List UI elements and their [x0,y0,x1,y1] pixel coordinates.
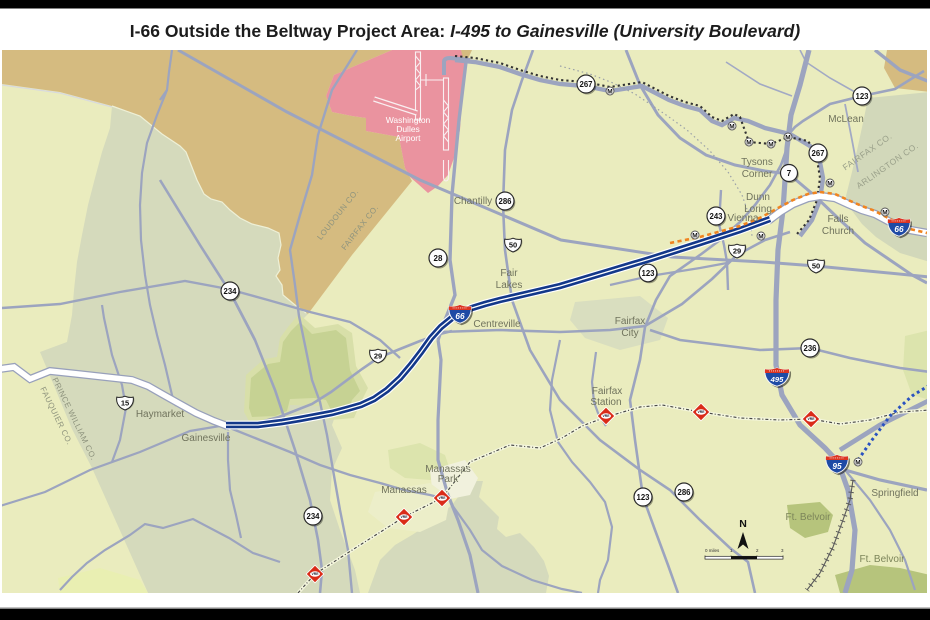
svg-text:Fairfax: Fairfax [592,386,623,397]
svg-text:McLean: McLean [828,114,864,125]
svg-text:28: 28 [434,254,443,263]
svg-text:Fairfax: Fairfax [615,316,646,327]
svg-text:50: 50 [812,262,820,271]
svg-text:286: 286 [498,197,512,206]
svg-text:Chantilly: Chantilly [454,196,492,207]
svg-text:Church: Church [822,226,854,237]
svg-text:Falls: Falls [827,214,848,225]
svg-text:267: 267 [579,80,592,89]
svg-text:286: 286 [677,488,691,497]
svg-text:N: N [739,518,747,530]
svg-text:234: 234 [306,512,320,521]
svg-text:VRE: VRE [698,410,706,414]
svg-text:95: 95 [832,461,842,471]
svg-text:VRE: VRE [439,496,447,500]
svg-text:Vienna: Vienna [728,213,759,224]
svg-text:0 miles: 0 miles [705,548,720,553]
svg-text:243: 243 [709,212,723,221]
svg-text:M: M [768,141,773,148]
svg-text:Corner: Corner [742,169,773,180]
svg-text:234: 234 [223,287,237,296]
svg-text:Lakes: Lakes [496,280,523,291]
svg-text:M: M [827,180,832,187]
svg-text:123: 123 [636,493,650,502]
svg-text:495: 495 [770,375,785,384]
svg-text:M: M [882,209,887,216]
svg-text:50: 50 [509,241,517,250]
svg-text:Manassas: Manassas [381,485,427,496]
svg-text:29: 29 [733,247,741,256]
svg-text:Tysons: Tysons [741,157,773,168]
svg-text:Springfield: Springfield [871,488,918,499]
svg-text:VRE: VRE [603,414,611,418]
svg-text:M: M [607,88,612,95]
svg-text:Ft. Belvoir: Ft. Belvoir [785,512,831,523]
svg-text:M: M [692,232,697,239]
svg-text:M: M [746,139,751,146]
svg-text:M: M [855,459,860,466]
svg-text:Ft. Belvoir: Ft. Belvoir [859,554,905,565]
svg-text:VRE: VRE [401,515,409,519]
svg-text:7: 7 [787,169,792,178]
svg-text:267: 267 [811,149,824,158]
svg-text:66: 66 [894,224,904,234]
svg-text:123: 123 [641,269,655,278]
svg-text:29: 29 [374,352,382,361]
svg-text:123: 123 [855,92,869,101]
svg-text:Fair: Fair [500,268,518,279]
svg-text:66: 66 [455,311,465,321]
svg-text:Gainesville: Gainesville [182,433,231,444]
svg-text:VRE: VRE [312,572,320,576]
svg-text:Haymarket: Haymarket [136,409,185,420]
svg-text:Station: Station [590,397,621,408]
svg-text:Park: Park [438,474,460,485]
svg-text:M: M [729,123,734,130]
svg-text:VRE: VRE [808,417,816,421]
svg-text:15: 15 [121,399,129,408]
svg-text:City: City [621,328,638,339]
svg-text:M: M [785,134,790,141]
svg-text:I-66 Outside the Beltway Proje: I-66 Outside the Beltway Project Area: I… [130,21,801,41]
svg-text:Dunn: Dunn [746,192,770,203]
svg-text:236: 236 [803,344,817,353]
svg-text:Centreville: Centreville [473,319,521,330]
svg-text:Airport: Airport [395,133,421,143]
svg-text:M: M [758,233,763,240]
